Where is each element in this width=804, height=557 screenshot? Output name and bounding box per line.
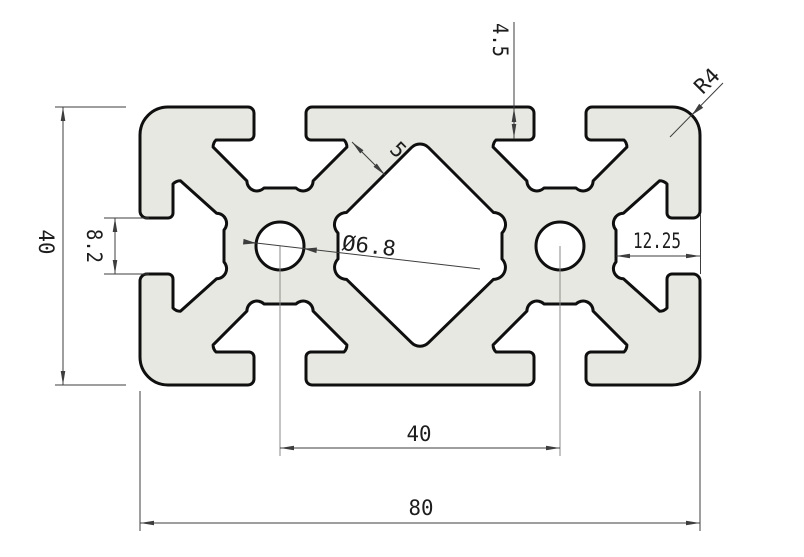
dim-text-end-slot-opening: 8.2 [82, 229, 106, 263]
dim-profile-width: 80 [140, 391, 700, 531]
dim-hole-spacing: 40 [280, 422, 560, 448]
profile-drawing: 40 8.2 4.5 R4 Ø6.8 12.25 5 40 [0, 0, 804, 557]
dim-text-hole-spacing: 40 [407, 422, 432, 446]
dim-text-corner-radius: R4 [689, 63, 724, 98]
dim-text-profile-width: 80 [409, 496, 434, 520]
dim-end-slot-opening: 8.2 [82, 218, 149, 274]
dim-profile-height: 40 [34, 107, 126, 385]
drawing-canvas: 40 8.2 4.5 R4 Ø6.8 12.25 5 40 [0, 0, 804, 557]
dim-text-slot-lip-depth: 4.5 [488, 23, 512, 57]
dim-text-profile-height: 40 [34, 230, 58, 255]
dim-text-end-slot-depth: 12.25 [633, 229, 681, 253]
dim-end-slot-depth: 12.25 [616, 214, 701, 274]
